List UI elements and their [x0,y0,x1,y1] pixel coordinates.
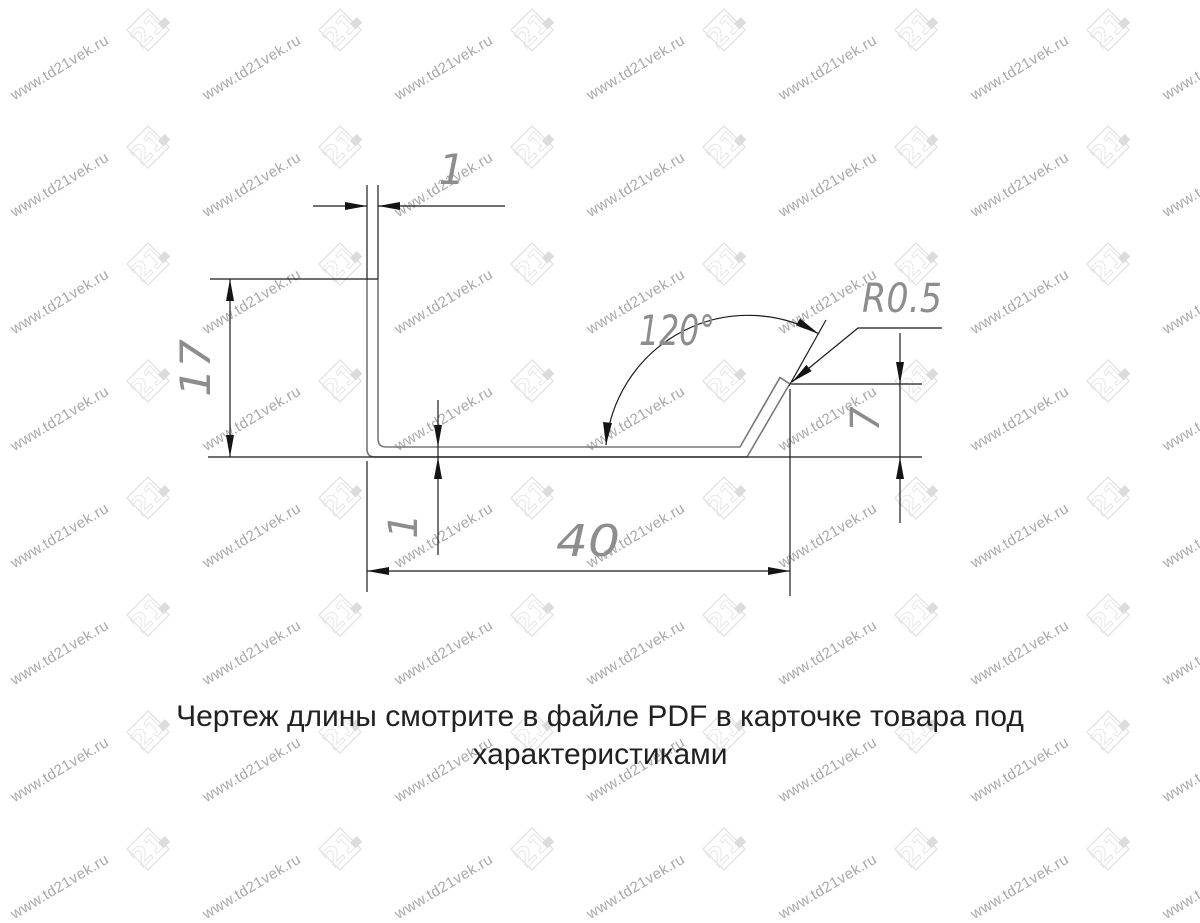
arrowhead [796,319,819,335]
arrowhead [378,202,400,210]
arrowhead [226,279,234,301]
product-drawing-image: www.td21vek.ru 21 www.td21vek.ru 21 www.… [0,0,1200,900]
arrowhead [768,567,790,575]
arrowhead [226,435,234,457]
label-top-thickness: 1 [439,145,466,194]
label-radius: R0.5 [862,276,942,322]
arrowhead [896,457,904,479]
arrowhead [345,202,367,210]
caption-text: Чертеж длины смотрите в файле PDF в карт… [130,698,1070,774]
label-angle: 120° [639,306,715,355]
radius-leader [792,328,942,382]
arrowhead [896,362,904,384]
arrowhead [603,422,612,445]
label-flange-height: 7 [843,406,889,432]
ext-line-slant [789,320,826,386]
profile-inner-edge [378,279,790,447]
arrowhead [792,365,812,382]
label-bottom-thickness: 1 [381,513,427,538]
arrowhead [367,567,389,575]
label-height: 17 [171,339,220,397]
dimension-labels: 1 17 120° R0.5 7 1 40 [171,145,942,567]
profile-outline [367,279,790,457]
arrowhead [434,425,442,447]
profile-outer-edge [367,279,789,457]
arrowhead [434,457,442,479]
label-width: 40 [556,516,620,567]
